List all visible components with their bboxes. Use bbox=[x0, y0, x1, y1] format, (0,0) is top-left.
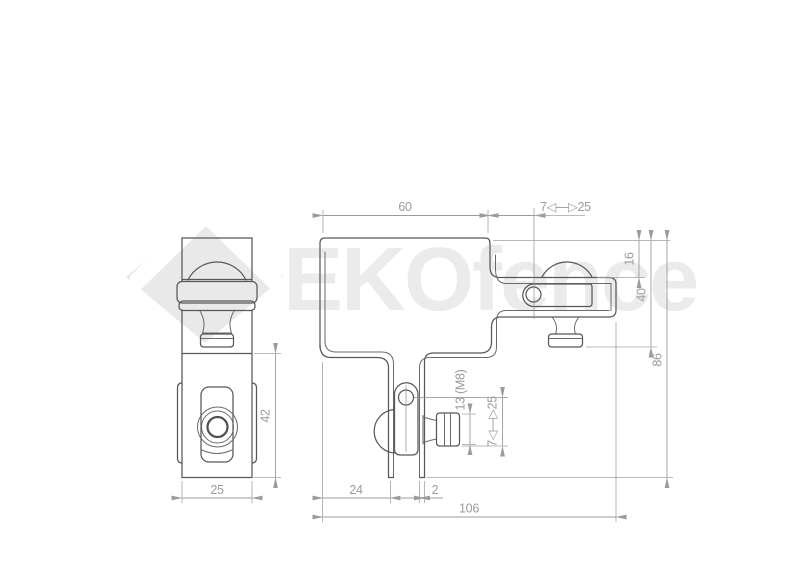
dim-2-label: 2 bbox=[432, 483, 439, 497]
side-body bbox=[182, 310, 252, 478]
dim-40-label: 40 bbox=[635, 288, 649, 302]
drawing-canvas: EKOfence bbox=[0, 0, 800, 566]
side-knob-circle-outer bbox=[198, 407, 238, 447]
hook-knob-cap bbox=[437, 413, 460, 446]
dim-60: 60 bbox=[323, 200, 488, 233]
watermark-logo: EKOfence bbox=[126, 202, 697, 343]
hook-bulge bbox=[374, 410, 394, 454]
side-slot-arc bbox=[202, 450, 232, 454]
dim-7-25-side-label: 7◁—▷25 bbox=[486, 396, 500, 447]
dim-2: 2 bbox=[401, 481, 443, 503]
side-tab-right bbox=[252, 383, 257, 463]
dim-16-label: 16 bbox=[623, 252, 637, 266]
side-knob-circle-mid bbox=[202, 411, 234, 443]
dim-25: 25 bbox=[182, 481, 252, 503]
front-bottom-bend-outer bbox=[320, 345, 389, 478]
dim-13-m8: 13 (M8) bbox=[454, 369, 477, 444]
dim-24: 24 bbox=[323, 362, 391, 522]
clamp-knob-cap bbox=[549, 334, 583, 347]
dim-25-label: 25 bbox=[210, 483, 224, 497]
dim-24-label: 24 bbox=[349, 483, 363, 497]
hook-knob-cap-ridges bbox=[445, 414, 451, 445]
technical-drawing: EKOfence bbox=[0, 0, 800, 566]
dim-13-m8-label: 13 (M8) bbox=[454, 369, 468, 410]
dim-86-label: 86 bbox=[651, 353, 665, 367]
dim-60-label: 60 bbox=[398, 200, 412, 214]
front-step-inner bbox=[420, 311, 610, 478]
dim-42-label: 42 bbox=[259, 409, 273, 423]
dim-7-25-top-label: 7◁—▷25 bbox=[540, 200, 591, 214]
side-knob-circle-inner bbox=[208, 417, 228, 437]
dim-7-25-side: 7◁—▷25 bbox=[462, 396, 508, 447]
dim-106-label: 106 bbox=[459, 502, 479, 516]
dim-7-25-top: 7◁—▷25 bbox=[490, 200, 591, 216]
dim-42: 42 bbox=[254, 354, 281, 478]
side-tab-left bbox=[178, 383, 183, 463]
